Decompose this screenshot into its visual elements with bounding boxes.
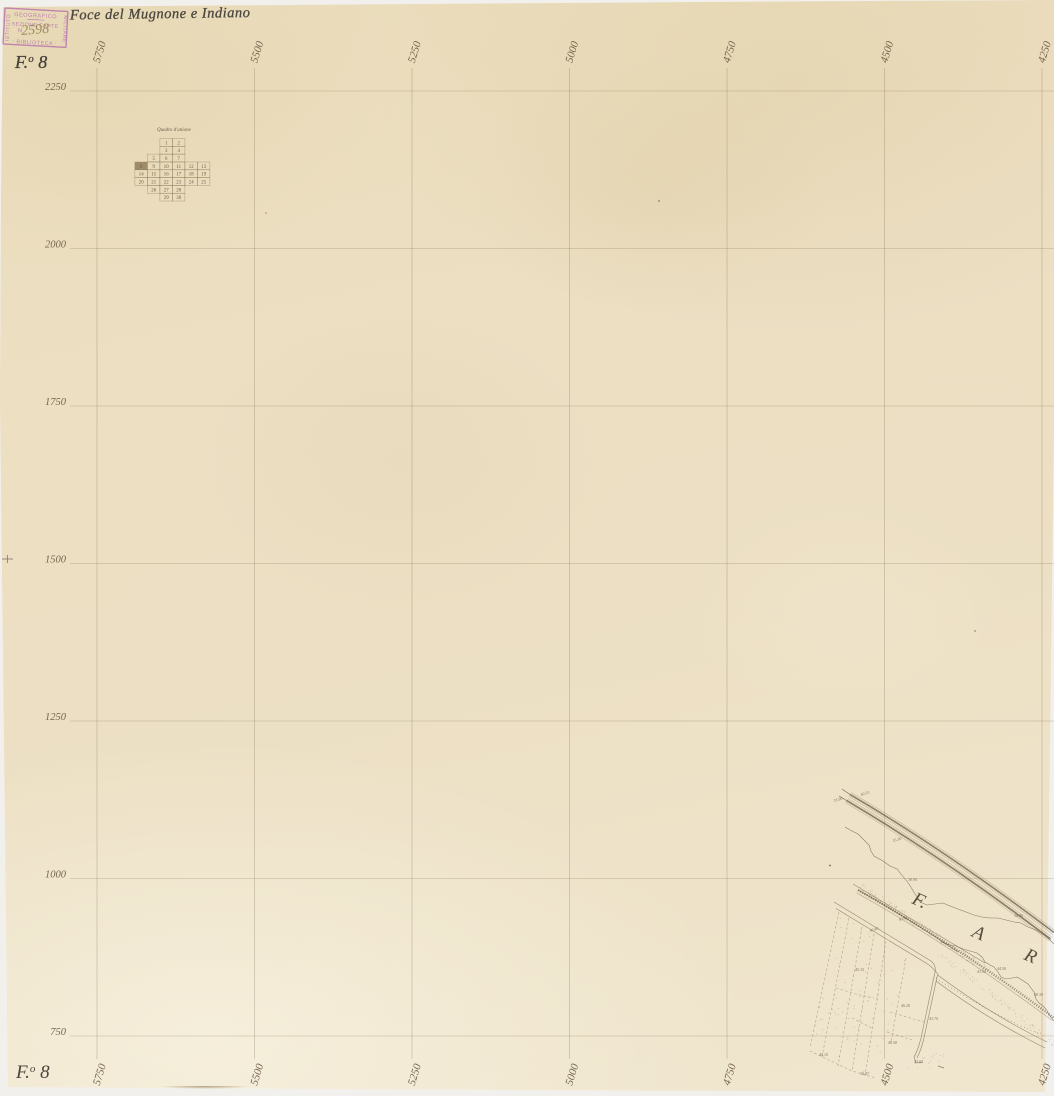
svg-text:36.40: 36.40 xyxy=(1014,913,1023,918)
svg-text:15: 15 xyxy=(151,173,156,178)
svg-text:2250: 2250 xyxy=(45,82,67,93)
svg-text:ISTITUTO: ISTITUTO xyxy=(5,14,12,42)
svg-text:A: A xyxy=(967,921,988,946)
svg-text:40.40: 40.40 xyxy=(898,915,908,922)
svg-text:5750: 5750 xyxy=(91,1062,109,1087)
svg-text:33.90: 33.90 xyxy=(833,796,843,803)
svg-text:1: 1 xyxy=(165,141,168,146)
svg-text:43.02: 43.02 xyxy=(914,1059,923,1064)
svg-text:5500: 5500 xyxy=(248,1062,266,1087)
svg-text:20: 20 xyxy=(139,181,144,186)
svg-text:3: 3 xyxy=(165,149,168,154)
svg-text:Foce del Mugnone e Indiano: Foce del Mugnone e Indiano xyxy=(69,5,251,24)
svg-text:38.90: 38.90 xyxy=(908,877,917,882)
svg-text:9: 9 xyxy=(152,165,155,170)
svg-text:43.70: 43.70 xyxy=(929,1016,938,1021)
svg-text:4500: 4500 xyxy=(878,39,896,64)
svg-text:F.o 8: F.o 8 xyxy=(14,52,47,72)
svg-text:4250: 4250 xyxy=(1036,1062,1054,1087)
svg-text:13: 13 xyxy=(201,165,206,170)
svg-text:28: 28 xyxy=(176,188,181,193)
svg-text:19: 19 xyxy=(201,173,206,178)
svg-text:23: 23 xyxy=(176,181,181,186)
svg-text:44.50: 44.50 xyxy=(997,966,1006,971)
svg-text:4750: 4750 xyxy=(721,39,739,64)
svg-text:4250: 4250 xyxy=(1036,39,1054,64)
svg-text:4: 4 xyxy=(177,149,180,154)
svg-text:17: 17 xyxy=(176,173,181,178)
svg-text:25: 25 xyxy=(201,181,206,186)
svg-text:40.70: 40.70 xyxy=(860,790,870,797)
svg-text:26: 26 xyxy=(151,188,156,193)
svg-text:4750: 4750 xyxy=(721,1062,739,1087)
svg-text:1750: 1750 xyxy=(45,397,67,408)
svg-text:MILITARE: MILITARE xyxy=(61,15,68,43)
svg-text:2000: 2000 xyxy=(45,240,67,251)
svg-text:2: 2 xyxy=(177,141,180,146)
svg-text:45.10: 45.10 xyxy=(855,967,864,972)
svg-text:5250: 5250 xyxy=(406,39,424,64)
svg-text:1250: 1250 xyxy=(45,712,67,723)
svg-text:16: 16 xyxy=(164,173,169,178)
svg-text:4500: 4500 xyxy=(878,1062,896,1087)
svg-text:2598: 2598 xyxy=(21,22,50,39)
svg-text:750: 750 xyxy=(50,1027,67,1038)
svg-text:43.50: 43.50 xyxy=(977,969,986,974)
svg-text:F.o 8: F.o 8 xyxy=(15,1062,50,1083)
svg-text:5500: 5500 xyxy=(248,39,266,64)
svg-text:1000: 1000 xyxy=(45,870,67,881)
svg-text:48.58: 48.58 xyxy=(888,1040,897,1045)
svg-text:35.30: 35.30 xyxy=(892,836,902,843)
svg-text:24: 24 xyxy=(189,181,194,186)
svg-text:14: 14 xyxy=(139,173,144,178)
svg-text:5000: 5000 xyxy=(563,1062,581,1087)
svg-text:5750: 5750 xyxy=(91,39,109,64)
svg-text:30.97: 30.97 xyxy=(860,1071,870,1076)
svg-text:10: 10 xyxy=(164,165,169,170)
svg-text:GEOGRAFICO: GEOGRAFICO xyxy=(14,12,57,20)
svg-text:40.40: 40.40 xyxy=(869,926,879,933)
svg-text:7: 7 xyxy=(177,157,180,162)
svg-text:48.30: 48.30 xyxy=(1034,992,1043,997)
svg-text:40.10: 40.10 xyxy=(819,1052,828,1057)
svg-text:1500: 1500 xyxy=(45,555,67,566)
svg-text:R: R xyxy=(1020,944,1040,968)
svg-text:27: 27 xyxy=(164,188,169,193)
svg-text:: BIBLIOTECA :: : BIBLIOTECA : xyxy=(12,39,57,47)
svg-text:12: 12 xyxy=(189,165,194,170)
svg-text:11: 11 xyxy=(176,165,181,170)
svg-text:6: 6 xyxy=(165,157,168,162)
svg-text:21: 21 xyxy=(151,181,156,186)
svg-text:30: 30 xyxy=(176,196,181,201)
svg-text:5: 5 xyxy=(152,157,155,162)
svg-text:5000: 5000 xyxy=(563,39,581,64)
svg-text:22: 22 xyxy=(164,181,169,186)
svg-text:46.28: 46.28 xyxy=(901,1003,910,1008)
svg-text:29: 29 xyxy=(164,196,169,201)
svg-text:Quadro d'unione: Quadro d'unione xyxy=(157,128,192,133)
svg-text:18: 18 xyxy=(189,173,194,178)
svg-text:5250: 5250 xyxy=(406,1062,424,1087)
